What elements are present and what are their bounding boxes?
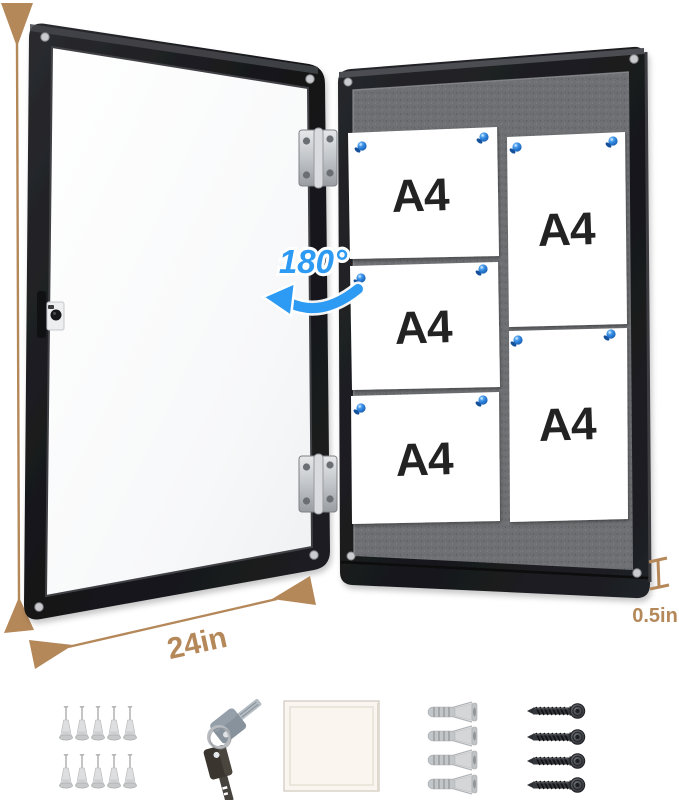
a4-paper: A4 [351, 392, 500, 524]
hinge-screw-icon [326, 169, 333, 176]
clear-pin-icon [107, 706, 120, 740]
mounting-screw-icon [527, 704, 585, 718]
width-arrowhead-left [29, 640, 73, 669]
clear-pin-icon [123, 706, 136, 740]
lock-slot [37, 291, 46, 338]
a4-label: A4 [394, 300, 454, 354]
a4-label: A4 [538, 397, 598, 451]
paper-pad-icon [284, 701, 379, 791]
a4-label: A4 [537, 202, 597, 256]
hinge-screw-icon [326, 495, 333, 502]
accessories-row [59, 691, 584, 800]
height-arrow-line [17, 44, 19, 600]
hinge-barrel [314, 454, 323, 514]
height-arrowhead-top [1, 3, 33, 47]
screw-cap-icon [633, 569, 641, 577]
a4-label: A4 [391, 168, 451, 222]
product-image-bulletin-board: 36in [0, 0, 679, 800]
depth-label: 0.5in [632, 605, 678, 627]
mounting-screw-icon [527, 730, 585, 744]
hinge-bottom [299, 454, 337, 514]
hinge-screw-icon [326, 135, 333, 142]
wall-anchors-icon [428, 702, 477, 794]
a4-paper: A4 [507, 132, 627, 327]
lock-keyhole [53, 312, 56, 315]
door-glass-panel [46, 47, 312, 596]
hinge-screw-icon [303, 497, 310, 504]
clear-pin-icon [75, 754, 88, 788]
screw-cap-icon [630, 55, 638, 63]
screw-cap-icon [35, 603, 43, 611]
lock-cylinder [51, 310, 62, 321]
hinge-screw-icon [303, 463, 310, 470]
mounting-screw-icon [527, 754, 585, 768]
clear-pin-icon [123, 754, 136, 788]
width-arrowhead-right [272, 576, 316, 605]
screw-cap-icon [41, 33, 49, 41]
hinge-barrel [314, 128, 323, 188]
scene: 36in [0, 0, 679, 800]
key-set-icon [203, 691, 268, 800]
clear-push-pins-icon [59, 706, 136, 788]
clear-pin-icon [75, 706, 88, 740]
a4-label: A4 [395, 432, 455, 486]
hinge-top [299, 128, 337, 188]
hinge-screw-icon [303, 137, 310, 144]
screw-cap-icon [344, 78, 352, 86]
depth-bracket [649, 558, 669, 589]
a4-paper: A4 [348, 127, 499, 259]
screw-cap-icon [310, 551, 318, 559]
cabinet-door [24, 24, 330, 620]
a4-paper: A4 [509, 328, 628, 522]
screw-cap-icon [306, 75, 314, 83]
screw-cap-icon [347, 552, 355, 560]
width-label: 24in [164, 621, 230, 666]
mounting-screws-icon [527, 704, 585, 792]
hinge-screw-icon [326, 461, 333, 468]
a4-paper: A4 [350, 262, 500, 390]
wall-anchor-icon [428, 702, 477, 722]
wall-anchor-icon [428, 726, 477, 746]
clear-pin-icon [91, 754, 104, 788]
wall-anchor-icon [428, 774, 477, 794]
clear-pin-icon [59, 706, 72, 740]
clear-pin-icon [91, 706, 104, 740]
rotation-label: 180° [279, 243, 348, 280]
mounting-screw-icon [527, 778, 585, 792]
lock-latch [48, 305, 54, 309]
clear-pin-icon [59, 754, 72, 788]
wall-anchor-icon [428, 750, 477, 770]
clear-pin-icon [107, 754, 120, 788]
hinge-screw-icon [303, 171, 310, 178]
